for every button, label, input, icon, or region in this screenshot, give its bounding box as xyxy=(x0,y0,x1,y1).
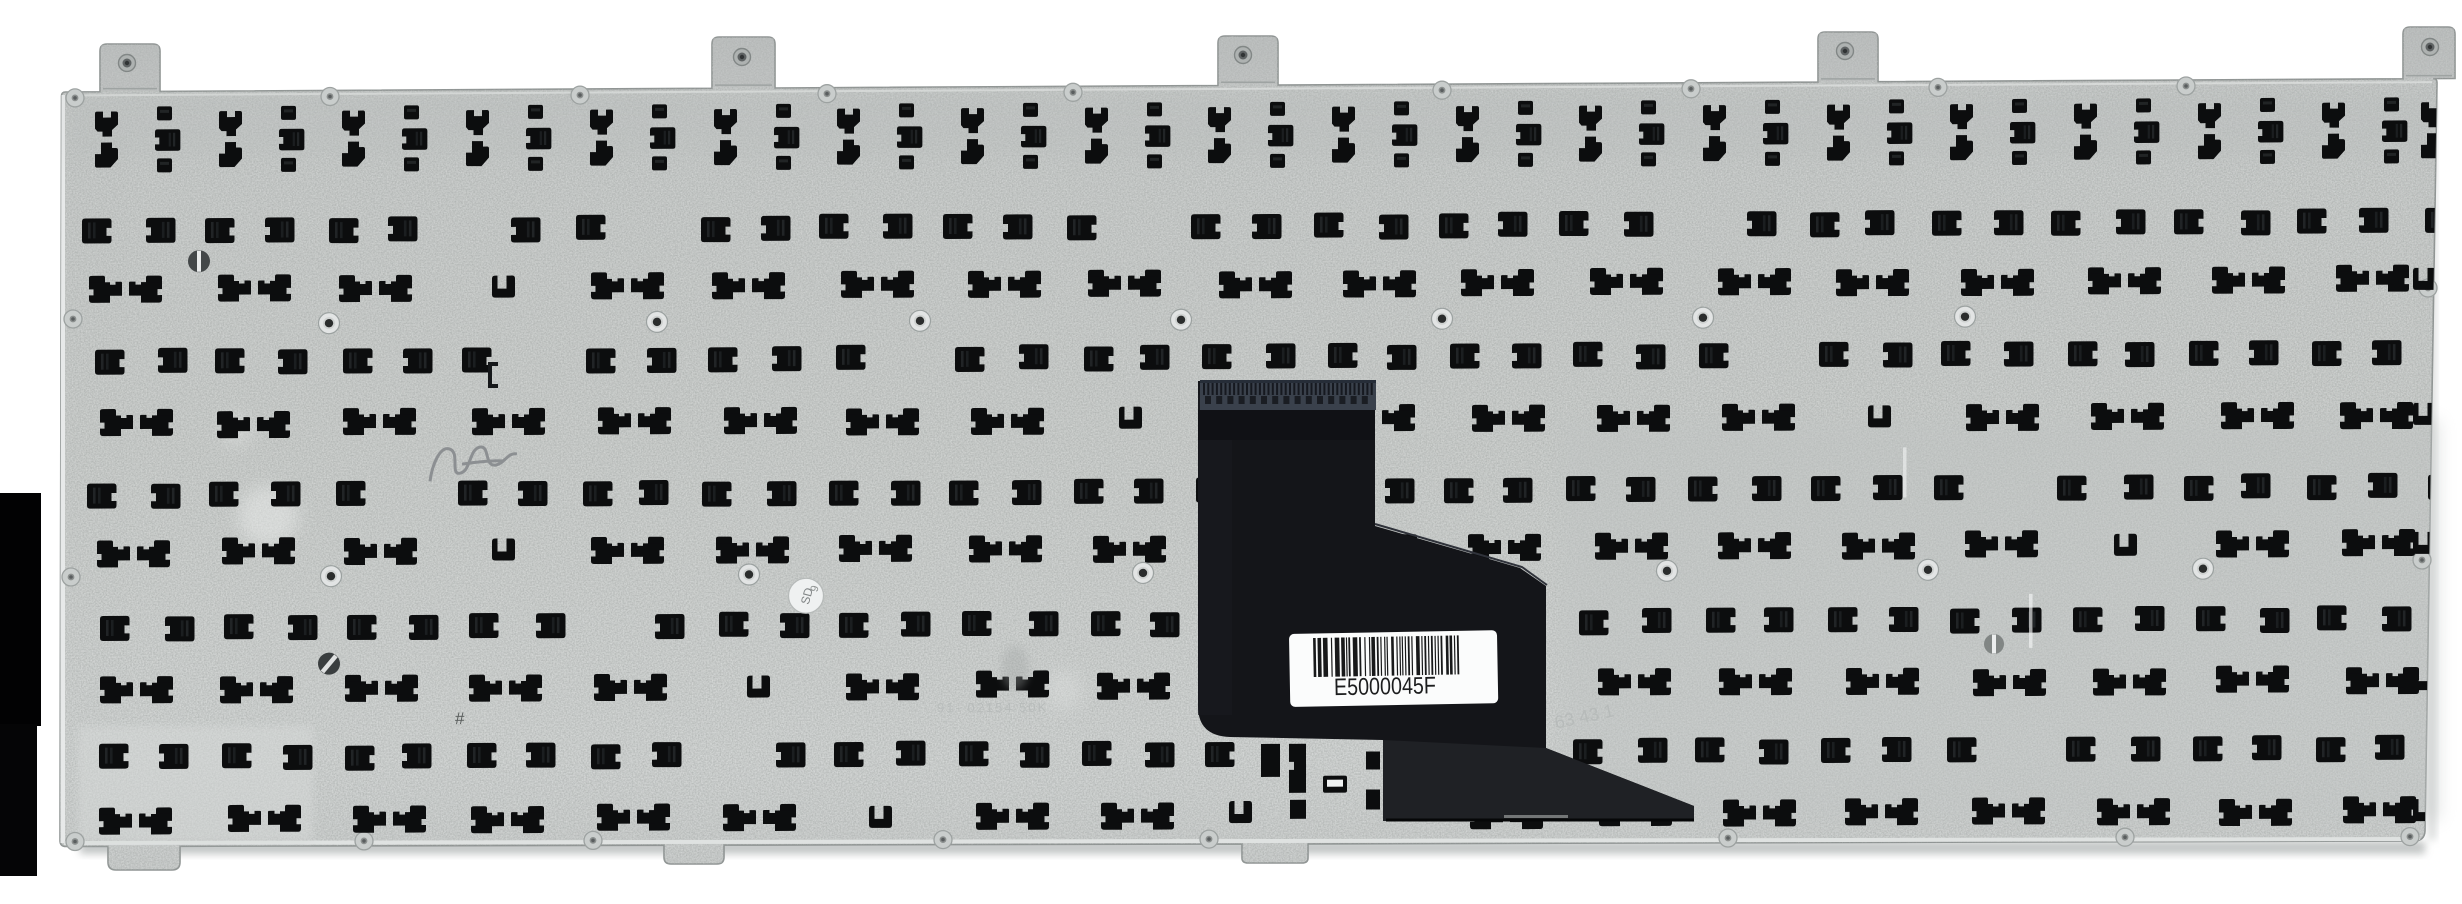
svg-text:91- 02154 50K: 91- 02154 50K xyxy=(937,700,1048,715)
svg-text:E5000045F: E5000045F xyxy=(1334,672,1436,701)
svg-text:#: # xyxy=(455,709,465,728)
